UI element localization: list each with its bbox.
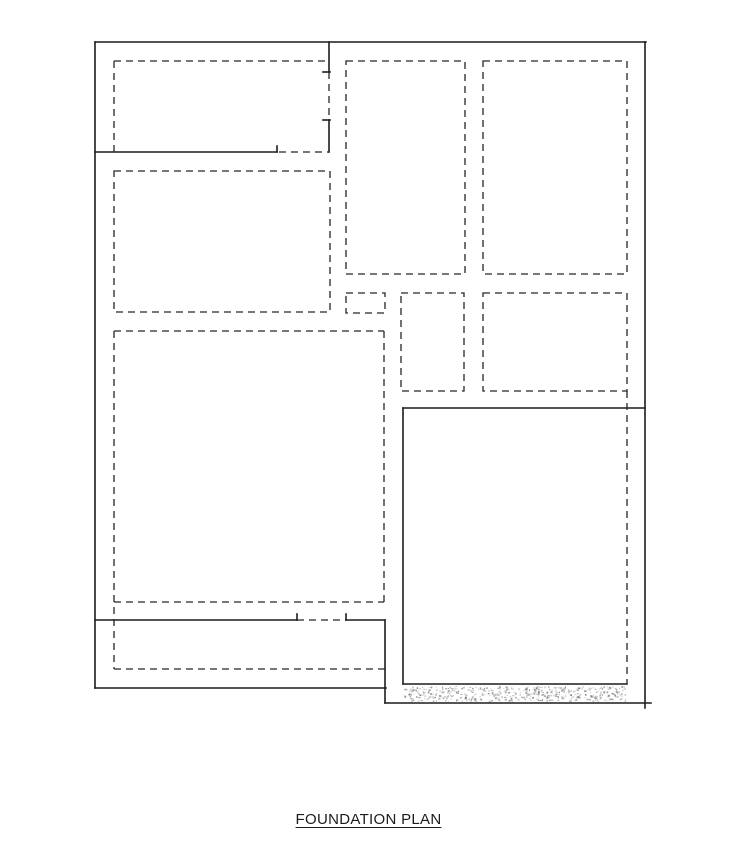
stipple-dot: [550, 689, 551, 691]
plan-title: FOUNDATION PLAN: [0, 811, 737, 828]
stipple-dot: [594, 697, 595, 699]
stipple-dot: [595, 699, 596, 701]
stipple-dot: [537, 699, 539, 700]
stipple-dot: [526, 688, 528, 690]
stipple-dot: [430, 694, 431, 695]
stipple-dot: [489, 701, 491, 702]
stipple-dot: [475, 687, 476, 688]
stipple-dot: [575, 694, 576, 695]
stipple-dot: [469, 690, 470, 691]
stipple-dot: [466, 699, 467, 701]
stipple-dot: [538, 700, 539, 701]
stipple-dot: [577, 690, 578, 691]
stipple-dot: [576, 693, 577, 694]
stipple-dot: [548, 686, 549, 688]
stipple-dot: [532, 689, 533, 690]
stipple-dot: [504, 697, 506, 698]
stipple-dot: [447, 692, 448, 693]
stipple-dot: [465, 697, 467, 699]
stipple-dot: [513, 689, 514, 690]
stipple-dot: [520, 694, 521, 695]
stipple-dot: [438, 698, 440, 700]
stipple-dot: [418, 691, 419, 692]
stipple-dot: [492, 690, 494, 691]
stipple-dot: [610, 687, 611, 689]
stipple-dot: [542, 695, 543, 696]
stipple-dot: [450, 691, 451, 692]
stipple-dot: [423, 692, 425, 694]
stipple-dot: [545, 686, 547, 687]
stipple-dot: [458, 691, 459, 692]
stipple-dot: [544, 695, 546, 697]
stipple-dot: [452, 690, 454, 691]
stipple-dot: [607, 688, 608, 689]
stipple-dot: [434, 701, 435, 702]
stipple-dot: [616, 689, 617, 690]
stipple-dot: [598, 701, 599, 702]
stipple-dot: [443, 691, 444, 692]
stipple-dot: [596, 697, 597, 698]
stipple-dot: [548, 697, 549, 699]
stipple-dot: [624, 700, 626, 701]
stipple-dot: [575, 699, 577, 700]
stipple-dot: [619, 688, 620, 689]
stipple-dot: [450, 687, 451, 688]
stipple-dot: [469, 687, 471, 688]
stipple-dot: [436, 686, 437, 687]
stipple-dot: [624, 686, 625, 688]
stipple-dot: [584, 690, 586, 692]
stipple-dot: [593, 695, 594, 696]
stipple-dot: [504, 699, 506, 700]
stipple-dot: [418, 693, 420, 694]
stipple-dot: [512, 695, 514, 696]
stipple-dot: [422, 687, 423, 688]
stipple-dot: [602, 694, 603, 696]
stipple-dot: [534, 689, 536, 690]
foundation-plan-drawing: [0, 0, 747, 858]
stipple-dot: [526, 696, 527, 698]
stipple-dot: [562, 689, 564, 691]
stipple-dot: [410, 689, 411, 691]
stipple-dot: [485, 694, 486, 695]
stipple-dot: [574, 700, 575, 701]
stipple-dot: [551, 690, 553, 692]
stipple-dot: [484, 686, 485, 687]
stipple-dot: [502, 698, 503, 699]
stipple-dot: [553, 695, 554, 697]
stipple-dot: [565, 686, 566, 688]
stipple-dot: [612, 699, 614, 700]
stipple-dot: [506, 689, 507, 691]
stipple-dot: [523, 690, 524, 691]
stipple-dot: [498, 699, 500, 701]
stipple-dot: [429, 690, 430, 691]
stipple-dot: [405, 697, 406, 698]
stipple-dot: [622, 690, 623, 692]
stipple-dot: [432, 694, 433, 695]
stipple-dot: [465, 694, 466, 695]
stipple-dot: [537, 686, 539, 687]
stipple-dot: [561, 697, 563, 699]
stipple-dot: [520, 692, 521, 694]
stipple-dot: [616, 691, 618, 693]
stipple-dot: [500, 700, 501, 701]
stipple-dot: [574, 690, 575, 692]
stipple-dot: [555, 694, 557, 696]
stipple-dot: [585, 701, 586, 702]
stipple-dot: [541, 690, 542, 691]
stipple-dot: [579, 697, 581, 698]
stipple-dot: [506, 697, 507, 698]
stipple-dot: [536, 694, 537, 695]
stipple-dot: [481, 700, 482, 701]
stipple-dot: [578, 688, 580, 690]
stipple-dot: [529, 698, 531, 699]
stipple-dot: [532, 697, 534, 699]
stipple-dot: [404, 689, 406, 691]
stipple-dot: [530, 693, 532, 694]
stipple-dot: [597, 700, 598, 701]
stipple-dot: [544, 687, 545, 688]
stipple-dot: [559, 687, 560, 689]
stipple-dot: [568, 692, 569, 693]
stipple-dot: [502, 696, 503, 698]
stipple-dot: [443, 688, 444, 689]
stipple-dot: [472, 698, 474, 699]
stipple-dot: [461, 688, 462, 689]
stipple-dot: [468, 689, 469, 691]
stipple-dot: [593, 687, 594, 688]
stipple-dot: [607, 691, 609, 693]
stipple-dot: [534, 693, 535, 694]
stipple-dot: [600, 693, 602, 695]
stipple-dot: [499, 686, 501, 688]
stipple-dot: [501, 696, 502, 698]
stipple-dot: [515, 697, 516, 699]
stipple-dot: [411, 691, 413, 693]
stipple-dot: [423, 695, 424, 696]
stipple-dot: [600, 695, 601, 697]
stipple-dot: [434, 697, 436, 698]
stipple-dot: [555, 695, 557, 696]
stipple-dot: [529, 689, 530, 691]
stipple-dot: [473, 690, 474, 691]
stipple-dot: [444, 696, 446, 698]
stipple-dot: [595, 696, 597, 697]
stipple-dot: [472, 692, 474, 693]
stipple-dot: [533, 693, 534, 694]
stipple-dot: [547, 696, 549, 697]
stipple-dot: [608, 695, 610, 697]
stipple-dot: [449, 693, 450, 694]
stipple-dot: [522, 698, 524, 699]
stipple-dot: [539, 687, 541, 688]
stipple-dot: [482, 694, 483, 695]
stipple-dot: [518, 688, 520, 690]
stipple-dot: [486, 688, 488, 689]
stipple-dot: [484, 690, 485, 691]
stipple-dot: [557, 696, 559, 698]
stipple-dot: [554, 687, 556, 688]
stipple-dot: [589, 690, 591, 691]
stipple-dot: [570, 700, 571, 701]
stipple-dot: [600, 697, 602, 699]
stipple-dot: [456, 700, 457, 701]
stipple-dot: [458, 700, 459, 701]
stipple-dot: [457, 693, 458, 694]
stipple-dot: [514, 692, 516, 693]
stipple-dot: [620, 699, 622, 701]
stipple-dot: [618, 690, 619, 691]
stipple-dot: [517, 698, 519, 700]
stipple-dot: [445, 700, 447, 701]
stipple-dot: [413, 694, 414, 695]
stipple-dot: [551, 699, 553, 701]
stipple-dot: [419, 688, 420, 689]
stipple-dot: [547, 697, 549, 699]
stipple-dot: [596, 692, 597, 693]
stipple-dot: [510, 700, 511, 701]
stipple-dot: [580, 688, 581, 689]
stipple-dot: [584, 698, 586, 699]
stipple-dot: [429, 687, 430, 688]
stipple-dot: [591, 696, 593, 698]
stipple-dot: [509, 700, 511, 702]
stipple-dot: [411, 698, 412, 699]
stipple-dot: [589, 687, 590, 689]
drawing-sheet: FOUNDATION PLAN: [0, 0, 747, 858]
stipple-dot: [535, 690, 536, 691]
stipple-dot: [448, 701, 449, 702]
stipple-dot: [442, 687, 443, 689]
stipple-dot: [619, 691, 620, 693]
stipple-dot: [603, 687, 604, 688]
stipple-dot: [588, 690, 589, 691]
stipple-dot: [412, 687, 414, 689]
stipple-dot: [469, 698, 470, 700]
stipple-dot: [435, 695, 436, 696]
stipple-dot: [506, 695, 508, 696]
stipple-dot: [506, 686, 507, 687]
stipple-dot: [556, 692, 558, 693]
stipple-dot: [560, 688, 562, 689]
stipple-dot: [511, 688, 512, 690]
stipple-dot: [538, 693, 540, 694]
stipple-dot: [410, 690, 411, 692]
stipple-dot: [495, 697, 497, 699]
stipple-dot: [404, 695, 405, 697]
stipple-dot: [592, 700, 594, 702]
stipple-dot: [601, 687, 602, 689]
stipple-dot: [587, 699, 588, 700]
stipple-dot: [446, 698, 447, 700]
stipple-dot: [538, 689, 540, 691]
stipple-dot: [442, 697, 443, 698]
stipple-dot: [515, 693, 517, 695]
stipple-dot: [500, 690, 501, 692]
stipple-dot: [497, 688, 499, 689]
stipple-dot: [475, 694, 476, 695]
stipple-dot: [448, 688, 449, 689]
stipple-dot: [606, 701, 608, 702]
stipple-dot: [443, 698, 445, 700]
stipple-dot: [494, 696, 495, 697]
stipple-dot: [412, 700, 413, 701]
stipple-dot: [580, 694, 582, 695]
stipple-dot: [482, 693, 484, 695]
stipple-dot: [621, 698, 623, 699]
stipple-dot: [617, 696, 619, 698]
stipple-dot: [511, 698, 513, 700]
stipple-dot: [456, 692, 457, 694]
stipple-dot: [597, 691, 599, 692]
stipple-dot: [478, 688, 480, 690]
stipple-dot: [460, 698, 461, 699]
stipple-dot: [488, 693, 490, 694]
stipple-dot: [410, 696, 411, 698]
stipple-dot: [571, 698, 572, 700]
stipple-dot: [499, 691, 500, 693]
stipple-dot: [529, 695, 531, 696]
stipple-dot: [478, 689, 479, 690]
stipple-dot: [423, 694, 425, 695]
sheet-background: [0, 0, 747, 858]
stipple-dot: [428, 692, 430, 694]
stipple-dot: [542, 699, 543, 701]
stipple-dot: [527, 687, 528, 688]
stipple-dot: [472, 696, 474, 697]
stipple-dot: [608, 689, 610, 690]
stipple-dot: [416, 696, 418, 697]
stipple-dot: [436, 690, 438, 691]
stipple-dot: [565, 695, 566, 697]
stipple-dot: [563, 698, 565, 699]
stipple-dot: [493, 695, 494, 697]
stipple-dot: [610, 698, 611, 700]
stipple-dot: [578, 696, 580, 698]
stipple-dot: [600, 692, 602, 693]
stipple-dot: [559, 692, 560, 693]
stipple-dot: [500, 693, 502, 695]
stipple-dot: [546, 700, 548, 702]
stipple-dot: [541, 687, 542, 688]
stipple-dot: [590, 699, 591, 700]
stipple-dot: [625, 699, 626, 700]
stipple-dot: [549, 696, 550, 697]
stipple-dot: [609, 700, 611, 701]
stipple-dot: [421, 700, 422, 701]
stipple-dot: [470, 700, 472, 702]
stipple-dot: [417, 687, 419, 689]
stipple-dot: [622, 694, 623, 695]
stipple-dot: [568, 690, 570, 691]
stipple-dot: [577, 694, 579, 695]
stipple-dot: [508, 692, 510, 693]
stipple-dot: [534, 687, 536, 688]
stipple-dot: [424, 698, 425, 699]
stipple-dot: [405, 696, 407, 698]
stipple-dot: [500, 688, 501, 690]
stipple-dot: [591, 688, 593, 689]
stipple-dot: [474, 699, 476, 701]
stipple-dot: [451, 688, 453, 689]
stipple-dot: [432, 697, 434, 698]
stipple-dot: [621, 695, 623, 696]
stipple-dot: [484, 690, 485, 692]
stipple-dot: [454, 688, 455, 690]
stipple-dot: [570, 694, 572, 696]
stipple-dot: [409, 694, 411, 695]
stipple-dot: [491, 690, 493, 691]
stipple-dot: [625, 694, 626, 696]
stipple-dot: [568, 691, 569, 692]
stipple-dot: [453, 695, 454, 697]
stipple-dot: [604, 687, 605, 688]
stipple-dot: [491, 700, 493, 702]
stipple-dot: [418, 697, 420, 698]
stipple-dot: [411, 695, 412, 696]
stipple-dot: [489, 695, 490, 696]
stipple-dot: [536, 688, 538, 689]
stipple-dot: [475, 701, 477, 702]
stipple-dot: [505, 692, 507, 693]
stipple-dot: [621, 693, 622, 695]
stipple-dot: [503, 688, 504, 689]
stipple-dot: [433, 692, 434, 693]
stipple-dot: [594, 689, 596, 691]
stipple-dot: [534, 691, 536, 693]
stipple-dot: [558, 698, 560, 700]
stipple-dot: [563, 692, 565, 693]
stipple-dot: [410, 699, 412, 700]
stipple-dot: [506, 687, 508, 688]
stipple-dot: [424, 696, 426, 697]
stipple-dot: [433, 701, 434, 702]
stipple-dot: [448, 690, 450, 691]
stipple-dot: [514, 694, 515, 696]
stipple-dot: [418, 700, 419, 702]
stipple-dot: [607, 686, 608, 687]
stipple-dot: [439, 695, 441, 697]
stipple-dot: [492, 692, 493, 694]
stipple-dot: [599, 689, 600, 690]
stipple-dot: [454, 690, 456, 691]
stipple-dot: [582, 687, 584, 688]
stipple-dot: [447, 696, 448, 697]
stipple-dot: [460, 694, 462, 695]
stipple-dot: [429, 696, 431, 698]
stipple-dot: [456, 688, 458, 689]
stipple-dot: [604, 699, 606, 700]
stipple-dot: [573, 691, 574, 693]
stipple-dot: [568, 689, 569, 690]
stipple-dot: [622, 686, 623, 688]
stipple-dot: [480, 696, 481, 697]
stipple-dot: [600, 688, 601, 689]
stipple-dot: [582, 688, 583, 689]
stipple-dot: [491, 688, 492, 689]
stipple-dot: [448, 695, 449, 697]
stipple-dot: [538, 697, 539, 698]
stipple-dot: [625, 688, 626, 690]
stipple-dot: [419, 695, 421, 696]
stipple-dot: [577, 693, 578, 694]
stipple-dot: [541, 691, 542, 693]
stipple-dot: [571, 690, 572, 691]
stipple-dot: [623, 690, 624, 691]
stipple-dot: [510, 696, 511, 697]
